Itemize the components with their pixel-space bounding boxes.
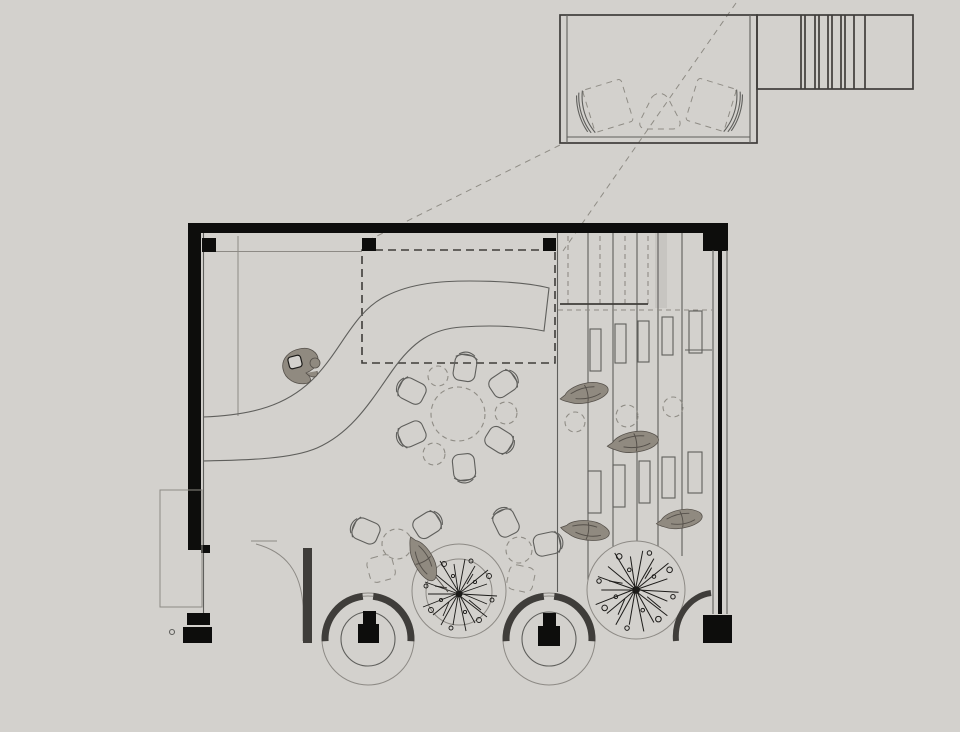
stair-treads — [801, 15, 865, 89]
tub-chair — [532, 530, 565, 558]
banquette-seat-backs — [588, 311, 702, 513]
wall-left — [188, 223, 201, 550]
tub-chair — [410, 507, 446, 541]
wall-top — [188, 223, 728, 233]
dashed-chair — [506, 564, 537, 594]
projection-lines — [367, 3, 736, 251]
plant-sculpture — [655, 506, 704, 532]
plant-sculpture — [558, 379, 610, 408]
tub-chair — [482, 424, 518, 458]
tub-chair — [393, 419, 428, 451]
hearth-left — [322, 593, 414, 685]
staircase — [757, 15, 913, 89]
shell-arc — [325, 596, 363, 641]
column-bottom-left-b — [183, 627, 212, 643]
stool-table — [506, 537, 532, 563]
stair-outline — [757, 15, 913, 89]
tub-chair — [486, 366, 522, 400]
wall-corner-top-right — [703, 232, 728, 251]
floor-plan-drawing — [0, 0, 960, 732]
lounge-chair-right — [685, 78, 746, 135]
tree-planter-2 — [587, 541, 685, 639]
stove — [358, 624, 379, 643]
round-table — [431, 387, 485, 441]
triangle-table — [640, 93, 680, 129]
tub-chair — [489, 504, 521, 540]
central-table-group — [393, 350, 523, 484]
survey-point — [170, 630, 175, 635]
partition-wall — [303, 548, 312, 643]
mezzanine-dashed-outline — [362, 250, 555, 363]
column — [362, 238, 376, 251]
tub-chair — [393, 374, 429, 407]
shading-strip — [655, 233, 667, 308]
plant-sculpture — [606, 428, 660, 455]
column — [202, 238, 216, 252]
tub-chair — [452, 350, 478, 382]
tub-chair — [347, 515, 382, 547]
tub-chair — [452, 453, 477, 484]
plant-sculpture — [560, 518, 611, 543]
hearth-right — [503, 593, 595, 685]
banquette-dashed-lines — [568, 236, 648, 306]
column — [543, 238, 556, 251]
stove — [538, 626, 560, 646]
stove-flue — [543, 613, 556, 626]
column-bottom-right — [703, 615, 732, 643]
upper-detail-room — [560, 15, 913, 143]
stove-flue — [363, 611, 376, 624]
bar-counter — [203, 281, 549, 461]
seat-cushion — [287, 355, 303, 370]
tree-canopy — [596, 551, 679, 632]
wall-right-core — [718, 250, 722, 614]
column-bottom-left-a — [187, 613, 210, 625]
curved-partition-left — [251, 541, 312, 643]
main-hall — [203, 233, 712, 685]
lounge-chair-left — [573, 79, 634, 136]
floor-plan-canvas — [0, 0, 960, 732]
